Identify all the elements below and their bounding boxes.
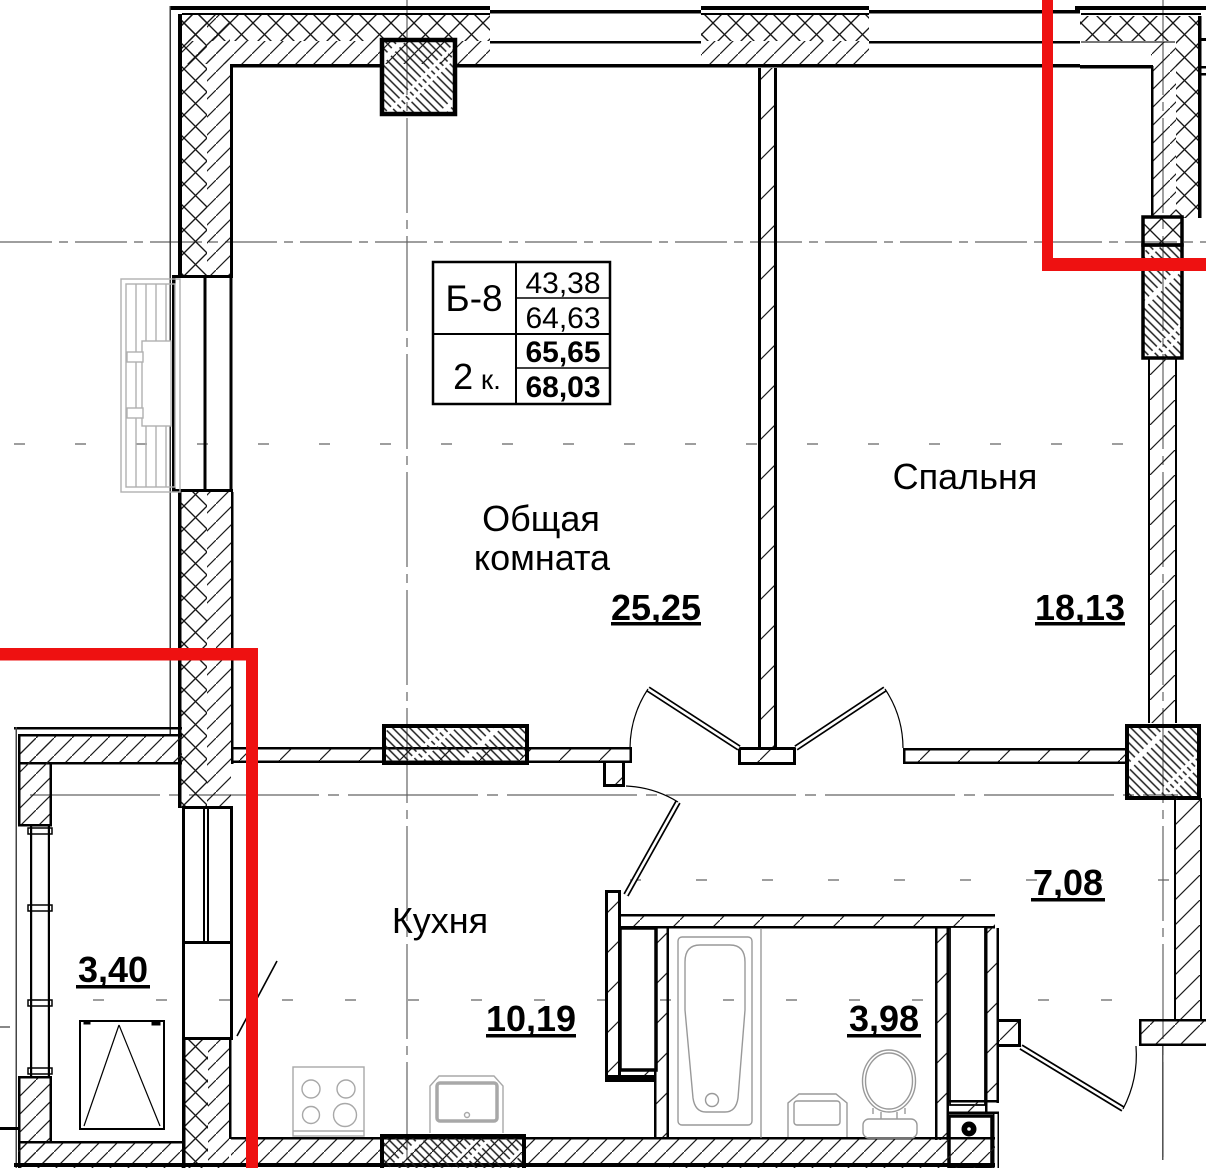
svg-text:Б-8: Б-8: [445, 278, 502, 319]
svg-text:10,19: 10,19: [486, 998, 576, 1039]
svg-text:65,65: 65,65: [525, 336, 600, 369]
svg-text:Общая: Общая: [482, 498, 600, 539]
svg-text:комната: комната: [474, 537, 611, 578]
svg-text:3,40: 3,40: [78, 949, 148, 990]
svg-text:43,38: 43,38: [525, 267, 600, 300]
svg-text:Кухня: Кухня: [392, 900, 488, 941]
svg-text:7,08: 7,08: [1033, 862, 1103, 903]
svg-text:Спальня: Спальня: [893, 456, 1038, 497]
svg-text:3,98: 3,98: [849, 998, 919, 1039]
svg-text:68,03: 68,03: [525, 371, 600, 404]
svg-text:64,63: 64,63: [525, 302, 600, 335]
svg-text:25,25: 25,25: [611, 587, 701, 628]
svg-text:18,13: 18,13: [1035, 587, 1125, 628]
